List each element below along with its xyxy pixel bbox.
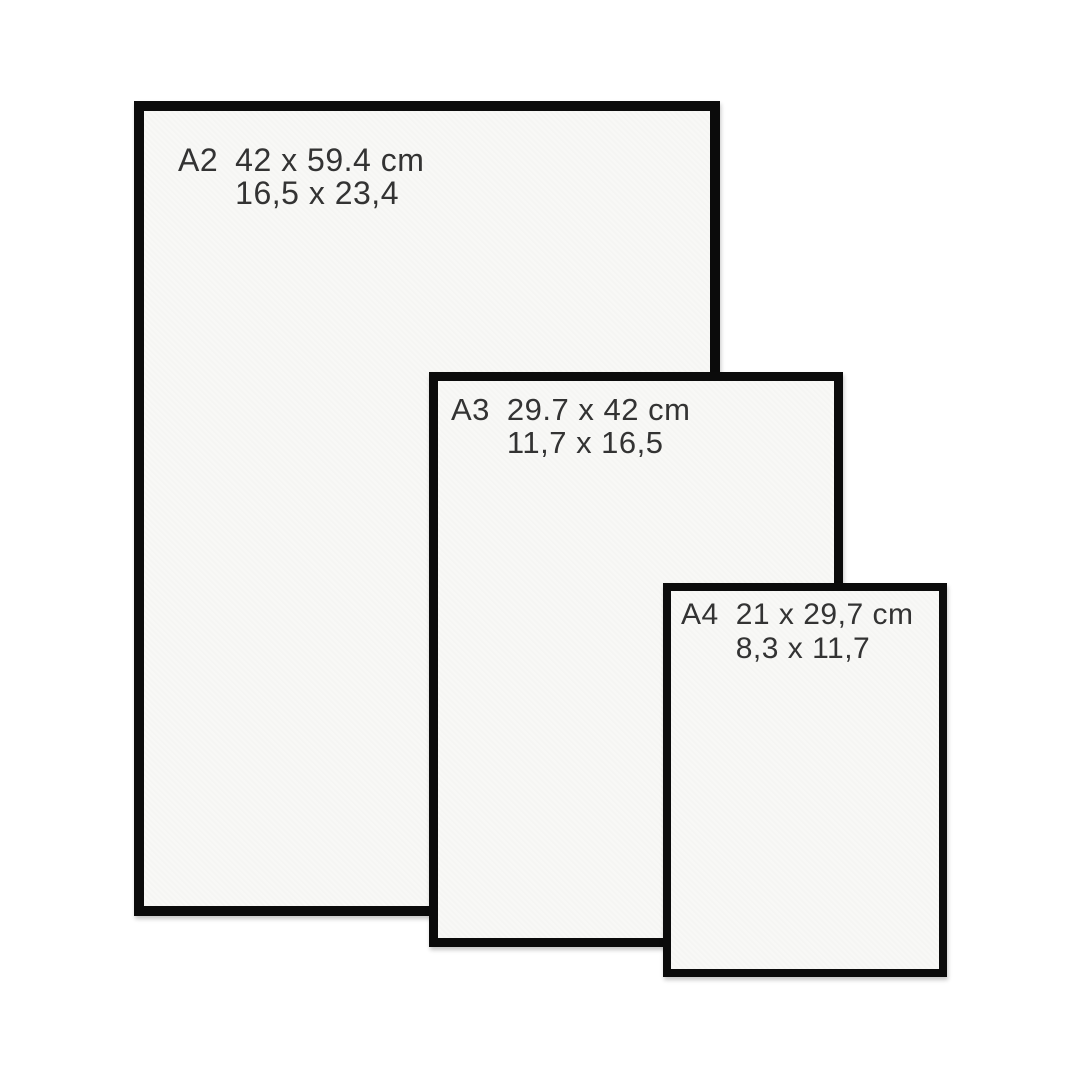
size-code-a4: A4 <box>681 598 719 632</box>
inch-size-a4: 8,3 x 11,7 <box>736 632 914 666</box>
size-label-a2: A2 42 x 59.4 cm 16,5 x 23,4 <box>178 144 710 210</box>
size-dims-a3: 29.7 x 42 cm 11,7 x 16,5 <box>507 393 690 459</box>
size-label-a4: A4 21 x 29,7 cm 8,3 x 11,7 <box>681 598 939 666</box>
metric-size-a4: 21 x 29,7 cm <box>736 598 914 632</box>
size-code-a3: A3 <box>451 393 490 426</box>
inch-size-a2: 16,5 x 23,4 <box>235 177 424 210</box>
frame-a4: A4 21 x 29,7 cm 8,3 x 11,7 <box>663 583 947 977</box>
size-label-a3: A3 29.7 x 42 cm 11,7 x 16,5 <box>451 393 834 459</box>
inch-size-a3: 11,7 x 16,5 <box>507 426 690 459</box>
size-comparison-canvas: A2 42 x 59.4 cm 16,5 x 23,4 A3 29.7 x 42… <box>0 0 1080 1080</box>
size-dims-a2: 42 x 59.4 cm 16,5 x 23,4 <box>235 144 424 210</box>
metric-size-a2: 42 x 59.4 cm <box>235 144 424 177</box>
size-code-a2: A2 <box>178 144 218 177</box>
size-dims-a4: 21 x 29,7 cm 8,3 x 11,7 <box>736 598 914 666</box>
metric-size-a3: 29.7 x 42 cm <box>507 393 690 426</box>
